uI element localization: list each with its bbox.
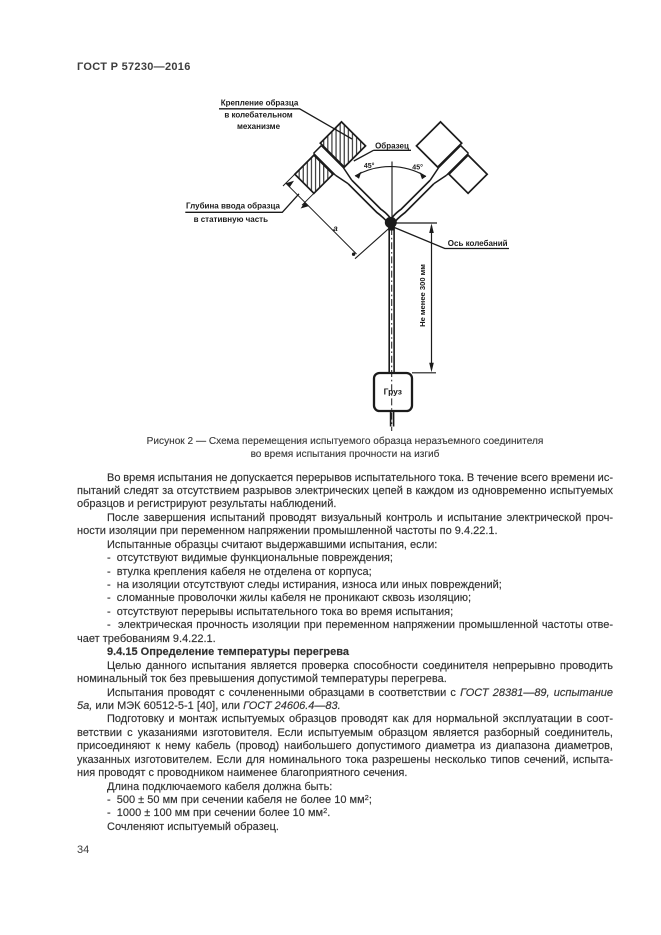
svg-text:Образец: Образец (375, 142, 409, 151)
svg-text:Крепление образца: Крепление образца (221, 98, 299, 107)
svg-text:механизме: механизме (237, 122, 281, 131)
svg-text:Не менее 300 мм: Не менее 300 мм (418, 264, 427, 327)
svg-text:а: а (333, 224, 338, 233)
svg-text:Глубина ввода образца: Глубина ввода образца (186, 202, 280, 211)
svg-text:Ось колебаний: Ось колебаний (448, 239, 508, 248)
svg-text:45°: 45° (364, 162, 375, 170)
svg-text:в колебательном: в колебательном (224, 111, 292, 120)
svg-text:в стативную часть: в стативную часть (194, 215, 269, 224)
svg-text:45°: 45° (412, 164, 423, 172)
svg-text:Груз: Груз (384, 386, 402, 396)
